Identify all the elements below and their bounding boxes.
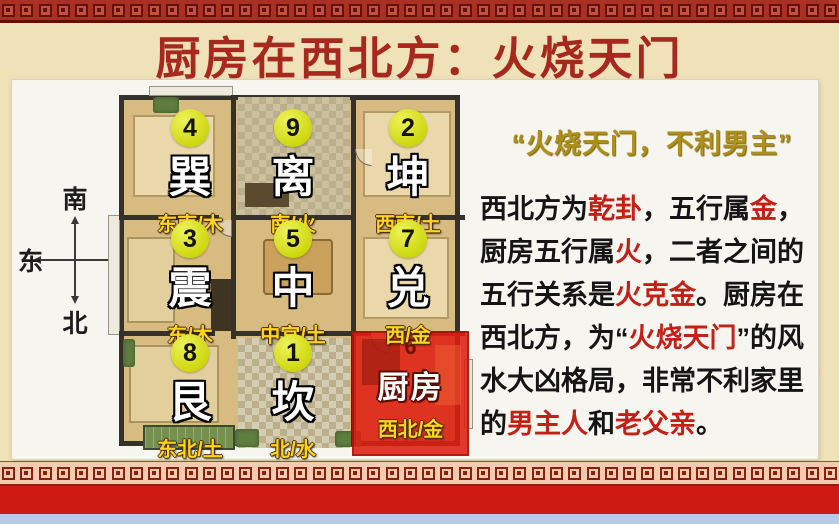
meander-pattern-cell — [294, 467, 307, 480]
highlighted-term: 金 — [750, 194, 777, 224]
sector-7: 7兑西/金 — [353, 220, 463, 348]
meander-pattern-cell — [20, 4, 33, 17]
meander-pattern-cell — [568, 467, 581, 480]
meander-pattern-cell — [678, 467, 691, 480]
meander-pattern-cell — [605, 467, 618, 480]
meander-pattern-cell — [221, 467, 234, 480]
sector-9: 9离南/火 — [238, 109, 348, 237]
meander-pattern-cell — [532, 467, 545, 480]
meander-pattern-cell — [166, 467, 179, 480]
sector-number: 4 — [171, 109, 209, 147]
meander-pattern-cell — [367, 467, 380, 480]
meander-pattern-cell — [513, 467, 526, 480]
meander-pattern-cell — [221, 4, 234, 17]
meander-pattern-cell — [568, 4, 581, 17]
highlighted-term: 老父亲 — [615, 409, 696, 439]
meander-pattern-cell — [513, 4, 526, 17]
meander-pattern-cell — [75, 467, 88, 480]
sector-direction-element-label: 西/金 — [385, 319, 431, 348]
top-meander-border — [0, 0, 839, 23]
meander-pattern-cell — [57, 4, 70, 17]
meander-pattern-cell — [769, 4, 782, 17]
body-text-segment: ，五行属 — [642, 194, 750, 224]
meander-pattern-cell — [313, 4, 326, 17]
body-text-segment: 。 — [696, 409, 723, 439]
meander-pattern-cell — [258, 4, 271, 17]
sector-trigram-name: 坎 — [272, 381, 315, 426]
highlighted-term: 火 — [615, 237, 642, 267]
meander-pattern-cell — [733, 4, 746, 17]
sector-number: 1 — [274, 334, 312, 372]
meander-pattern-cell — [386, 467, 399, 480]
meander-pattern-cell — [532, 4, 545, 17]
analysis-panel: “火烧天门，不利男主” 西北方为乾卦，五行属金，厨房五行属火，二者之间的五行关系… — [480, 122, 824, 446]
sector-trigram-name: 巽 — [169, 156, 212, 201]
floor-plan: 4巽东南/木9离南/火2坤西南/土3震东/木5中中宫/土7兑西/金8艮东北/土1… — [115, 89, 471, 459]
sector-6-kitchen: 6厨房西北/金 — [352, 331, 469, 456]
sector-3: 3震东/木 — [135, 220, 245, 348]
meander-pattern-cell — [112, 467, 125, 480]
meander-pattern-cell — [623, 4, 636, 17]
meander-pattern-cell — [404, 467, 417, 480]
meander-pattern-cell — [696, 467, 709, 480]
meander-pattern-cell — [824, 467, 837, 480]
meander-pattern-cell — [733, 467, 746, 480]
highlighted-term: 乾卦 — [588, 194, 642, 224]
compass-label-south: 南 — [62, 180, 87, 216]
meander-pattern-cell — [751, 467, 764, 480]
meander-pattern-cell — [166, 4, 179, 17]
sector-trigram-name: 离 — [272, 156, 315, 201]
meander-pattern-cell — [404, 4, 417, 17]
meander-pattern-cell — [714, 4, 727, 17]
sector-1: 1坎北/水 — [238, 334, 348, 462]
meander-pattern-cell — [495, 4, 508, 17]
meander-pattern-cell — [75, 4, 88, 17]
sector-number: 7 — [389, 220, 427, 258]
meander-pattern-cell — [806, 4, 819, 17]
sector-direction-element-label: 北/水 — [270, 433, 316, 462]
meander-pattern-cell — [495, 467, 508, 480]
meander-pattern-cell — [660, 467, 673, 480]
sector-5: 5中中宫/土 — [238, 220, 348, 348]
meander-pattern-cell — [349, 4, 362, 17]
meander-pattern-cell — [440, 467, 453, 480]
meander-pattern-cell — [39, 4, 52, 17]
meander-pattern-cell — [313, 467, 326, 480]
sector-trigram-name: 艮 — [169, 381, 212, 426]
meander-pattern-cell — [130, 4, 143, 17]
meander-pattern-cell — [422, 4, 435, 17]
analysis-heading: “火烧天门，不利男主” — [480, 122, 824, 161]
sector-direction-element-label: 西北/金 — [378, 413, 444, 442]
meander-pattern-cell — [641, 4, 654, 17]
meander-pattern-cell — [550, 4, 563, 17]
sector-4: 4巽东南/木 — [135, 109, 245, 237]
meander-pattern-cell — [440, 4, 453, 17]
meander-pattern-cell — [239, 4, 252, 17]
meander-pattern-cell — [696, 4, 709, 17]
meander-pattern-cell — [459, 467, 472, 480]
sector-8: 8艮东北/土 — [135, 334, 245, 462]
meander-pattern-cell — [422, 467, 435, 480]
meander-pattern-cell — [824, 4, 837, 17]
meander-pattern-cell — [239, 467, 252, 480]
highlighted-term: 火烧天门 — [629, 323, 737, 353]
meander-pattern-cell — [623, 467, 636, 480]
sector-trigram-name: 中 — [272, 267, 315, 312]
meander-pattern-cell — [185, 4, 198, 17]
meander-pattern-cell — [93, 4, 106, 17]
bottom-blue-strip — [0, 514, 839, 524]
meander-pattern-cell — [276, 467, 289, 480]
balcony-outline — [149, 86, 233, 96]
meander-pattern-cell — [130, 467, 143, 480]
meander-pattern-cell — [294, 4, 307, 17]
meander-pattern-cell — [331, 4, 344, 17]
body-text-segment: 西北方为 — [480, 194, 588, 224]
meander-pattern-cell — [714, 467, 727, 480]
sector-trigram-name: 震 — [169, 267, 212, 312]
meander-pattern-cell — [148, 467, 161, 480]
sector-number: 8 — [171, 334, 209, 372]
meander-pattern-cell — [148, 4, 161, 17]
meander-pattern-cell — [112, 4, 125, 17]
meander-pattern-cell — [20, 467, 33, 480]
sector-trigram-name: 兑 — [387, 267, 430, 312]
content-panel: 南 东 西 北 4巽东南/木9离南/火2坤西南/土3震东/木5中中宫/土7兑西/… — [11, 79, 819, 460]
compass-label-east: 东 — [18, 242, 43, 278]
meander-pattern-cell — [276, 4, 289, 17]
compass-label-north: 北 — [62, 304, 87, 340]
page: { "header": { "title": "厨房在西北方：火烧天门" }, … — [0, 0, 839, 524]
meander-pattern-cell — [660, 4, 673, 17]
sector-number: 3 — [171, 220, 209, 258]
body-text-segment: 和 — [588, 409, 615, 439]
meander-pattern-cell — [550, 467, 563, 480]
meander-pattern-cell — [203, 467, 216, 480]
meander-pattern-cell — [769, 467, 782, 480]
meander-pattern-cell — [751, 4, 764, 17]
meander-pattern-cell — [185, 467, 198, 480]
meander-pattern-cell — [477, 467, 490, 480]
meander-pattern-cell — [2, 467, 15, 480]
bottom-red-band — [0, 486, 839, 515]
meander-pattern-cell — [678, 4, 691, 17]
analysis-body: 西北方为乾卦，五行属金，厨房五行属火，二者之间的五行关系是火克金。厨房在西北方，… — [480, 188, 824, 446]
meander-pattern-cell — [605, 4, 618, 17]
sector-number: 9 — [274, 109, 312, 147]
meander-pattern-cell — [587, 4, 600, 17]
meander-pattern-cell — [349, 467, 362, 480]
meander-pattern-cell — [587, 467, 600, 480]
sector-trigram-name: 坤 — [387, 156, 430, 201]
meander-pattern-cell — [367, 4, 380, 17]
meander-pattern-cell — [258, 467, 271, 480]
meander-pattern-cell — [386, 4, 399, 17]
meander-pattern-cell — [806, 467, 819, 480]
meander-pattern-cell — [477, 4, 490, 17]
plant-decor — [123, 339, 135, 367]
meander-pattern-cell — [787, 4, 800, 17]
meander-pattern-cell — [93, 467, 106, 480]
bottom-meander-border — [0, 461, 839, 486]
meander-pattern-cell — [459, 4, 472, 17]
sector-trigram-name: 厨房 — [378, 362, 444, 407]
highlighted-term: 男主人 — [507, 409, 588, 439]
meander-pattern-cell — [331, 467, 344, 480]
meander-pattern-cell — [39, 467, 52, 480]
meander-pattern-cell — [641, 467, 654, 480]
page-title: 厨房在西北方：火烧天门 — [0, 22, 839, 87]
meander-pattern-cell — [203, 4, 216, 17]
sector-direction-element-label: 东北/土 — [157, 433, 223, 462]
sector-number: 5 — [274, 220, 312, 258]
sector-number: 2 — [389, 109, 427, 147]
balcony-outline — [108, 215, 120, 335]
meander-pattern-cell — [2, 4, 15, 17]
highlighted-term: 火克金 — [615, 280, 696, 310]
sector-2: 2坤西南/土 — [353, 109, 463, 237]
meander-pattern-cell — [787, 467, 800, 480]
meander-pattern-cell — [57, 467, 70, 480]
